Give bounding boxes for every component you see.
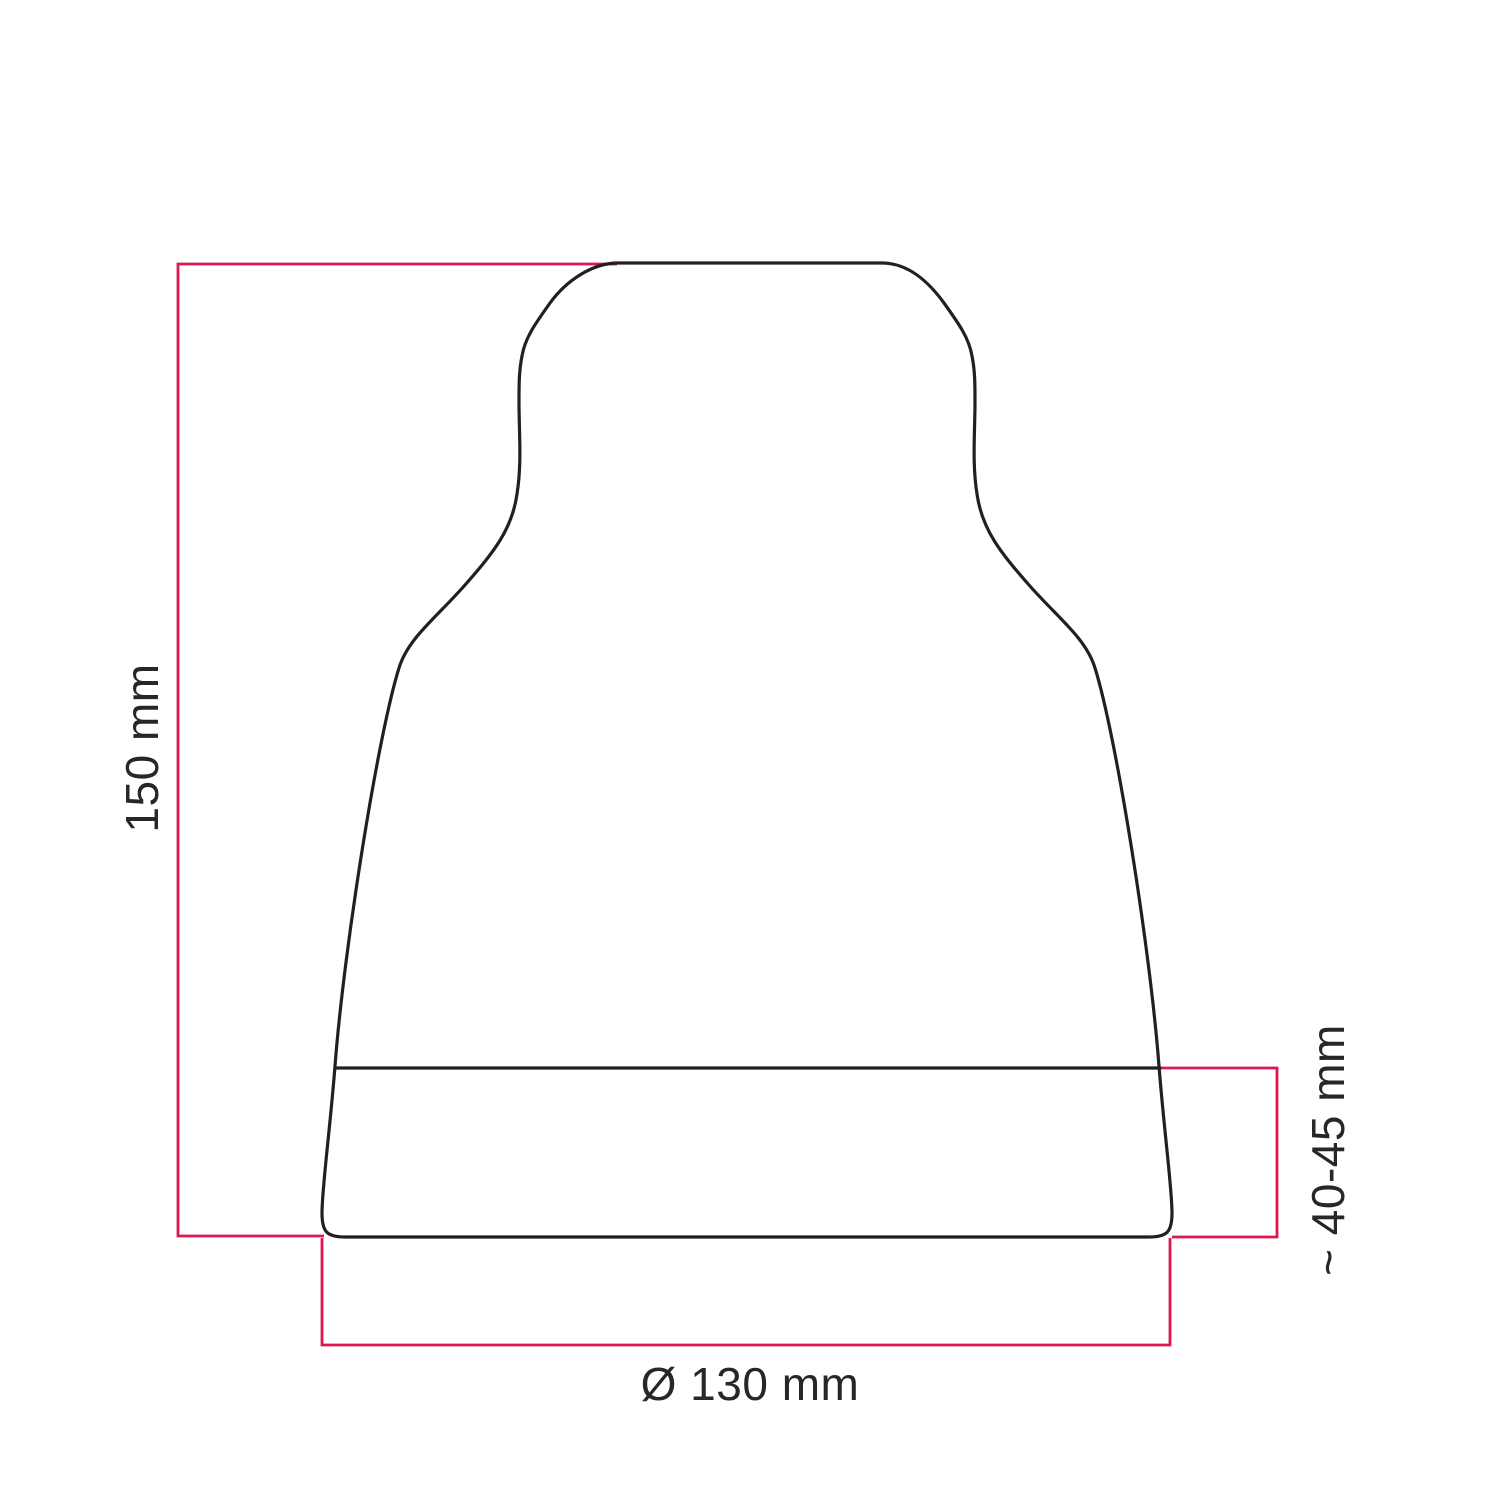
height-dimension-label: 150 mm xyxy=(116,663,168,832)
band-dimension-line xyxy=(1161,1068,1277,1237)
diameter-dimension-line xyxy=(322,1238,1170,1345)
dimension-diagram: 150 mm ~ 40-45 mm Ø 130 mm xyxy=(0,0,1500,1500)
band-dimension-label: ~ 40-45 mm xyxy=(1302,1024,1354,1276)
dimension-diagram-svg: 150 mm ~ 40-45 mm Ø 130 mm xyxy=(0,0,1500,1500)
lampshade-outline xyxy=(322,263,1172,1237)
height-dimension-line xyxy=(178,264,617,1236)
diameter-dimension-label: Ø 130 mm xyxy=(641,1358,860,1410)
